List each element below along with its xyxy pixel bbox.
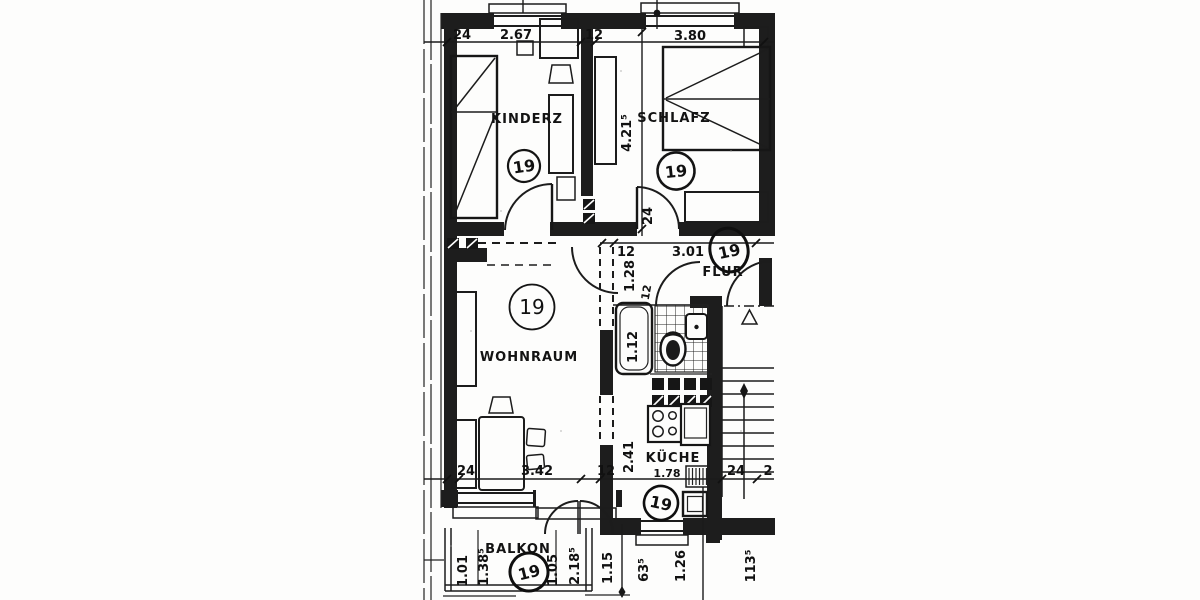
dim-below-1: 1.15 [601,552,616,584]
dim-bad-tub: 1.12 [626,331,641,363]
shaft-wohnraum-corner [447,238,478,249]
wall-partition-kinderz-schlafz [581,29,593,196]
shelf-kinderz [557,177,575,200]
unit-circle-kueche: 19 [641,483,681,523]
label-flur: FLUR [702,265,743,280]
sink-icon [686,314,707,339]
dim-flur-width: 3.01 [672,245,704,260]
door-kinderz [505,184,552,230]
wardrobe-icon [451,56,497,218]
wall-south-wohnraum-1 [441,490,458,507]
wall-south-wohnraum-2 [533,490,536,507]
pillow-kinderz [517,41,533,55]
svg-text:19: 19 [648,492,674,515]
dim-top-partition: 12 [585,28,603,43]
furniture-wohnraum [452,292,546,490]
svg-text:19: 19 [716,240,742,263]
wall-bad-kueche-left-a [600,330,613,395]
floor-plan-page: 24 2.67 12 3.80 4.21⁵ 24 12 3.01 1.28 12… [0,0,1200,600]
wall-top-mid [561,13,646,29]
floor-plan-drawing: 24 2.67 12 3.80 4.21⁵ 24 12 3.01 1.28 12… [0,0,1200,600]
wall-south-wohnraum-3 [616,490,622,507]
toilet-icon [661,333,686,366]
dim-flur-jamb: 12 [639,284,654,301]
svg-text:19: 19 [664,161,688,182]
dim-bottom-wohnraum: 3.42 [521,464,553,479]
unit-circle-kinderz: 19 [506,148,542,184]
dim-bottom-wall: 24 [457,464,475,479]
wall-south-bump [706,535,720,543]
unit-circle-wohnraum: 19 [510,285,555,330]
dim-schlafz-depth: 4.21⁵ [620,114,635,152]
svg-text:19: 19 [519,295,544,319]
kitchen-counter [681,404,710,445]
wardrobe-schlafz [595,57,616,164]
dim-below-3: 1.26 [674,550,689,582]
shaft-block-bad [650,374,712,407]
door-wohnraum [572,247,618,328]
dim-below-4: 113⁵ [744,550,759,583]
unit-circle-schlafz: 19 [656,151,697,192]
dim-top-kinderz: 2.67 [500,28,532,43]
landing-triangle-icon [742,310,757,324]
dim-top-schlafz: 3.80 [674,29,706,44]
window-kueche [636,521,688,545]
dim-balkon-4: 2.18⁵ [568,547,583,585]
label-kinderz: KINDERZ [491,112,563,127]
label-wohnraum: WOHNRAUM [480,350,578,365]
double-bed-icon [663,47,770,150]
stair-direction-arrow [740,383,748,399]
shelf-wohnraum [455,292,476,386]
dim-kueche-width: 1.78 [653,467,680,480]
chair-kinderz [549,65,573,83]
chair-top [489,397,513,413]
svg-text:19: 19 [516,561,542,585]
wall-south-stair [683,518,775,535]
dim-bottom-stair-part: 2 [763,464,772,479]
dim-bottom-partition: 12 [597,464,615,479]
wall-wohnraum-north [444,248,487,262]
dim-flur-opening: 1.28 [623,260,638,292]
chair-right-1 [526,428,545,446]
dim-schlafz-wall: 24 [641,207,656,225]
dim-bottom-stair-wall: 24 [727,464,745,479]
wall-bedrooms-south-2 [550,222,637,236]
stove-icon [648,406,682,442]
window-wohnraum [453,493,538,518]
dim-kueche-depth: 2.41 [622,441,637,473]
shaft-partition [583,199,595,224]
wall-entry-stub [759,258,772,306]
door-kueche [600,396,613,444]
kitchen-sink-hatched [686,466,709,487]
label-kueche: KÜCHE [646,450,701,466]
dim-flur-wall: 12 [617,245,635,260]
dresser-icon [685,192,768,222]
label-schlafz: SCHLAFZ [637,111,710,126]
svg-text:19: 19 [512,156,537,178]
dim-below-2: 63⁵ [637,558,652,582]
window-kinderz [489,4,566,26]
dim-balkon-1: 1.01 [456,555,471,587]
dim-top-wall: 24 [453,28,471,43]
cabinet-kinderz [549,95,573,173]
wall-bedrooms-south-1 [444,222,504,236]
